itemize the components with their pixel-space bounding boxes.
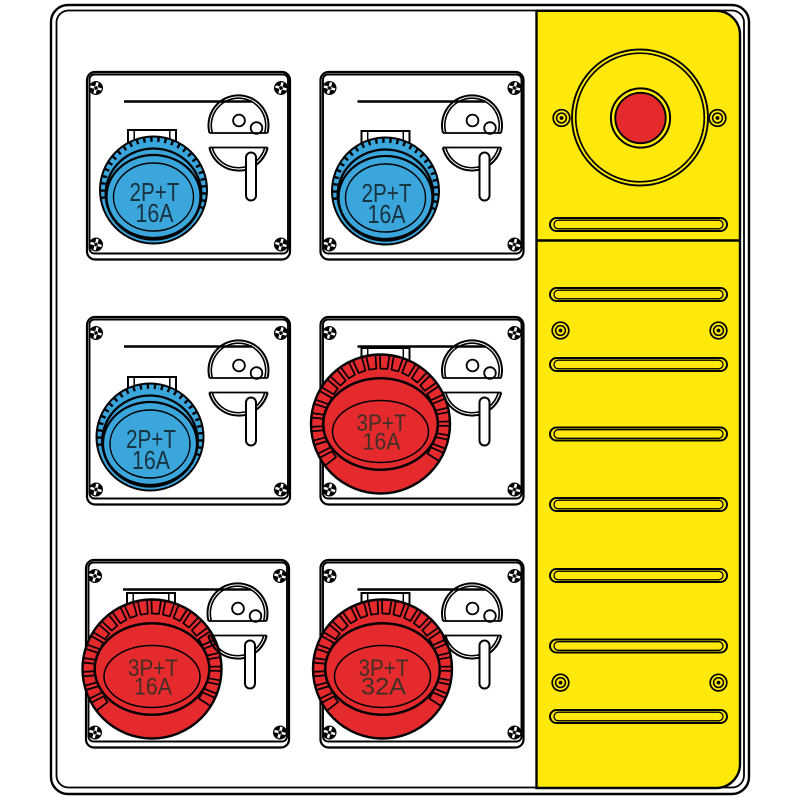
svg-text:16A: 16A	[136, 198, 175, 228]
svg-text:16A: 16A	[363, 429, 401, 456]
svg-text:16A: 16A	[368, 199, 407, 229]
svg-text:16A: 16A	[132, 445, 171, 475]
svg-text:16A: 16A	[134, 674, 172, 701]
svg-text:32A: 32A	[361, 674, 406, 701]
